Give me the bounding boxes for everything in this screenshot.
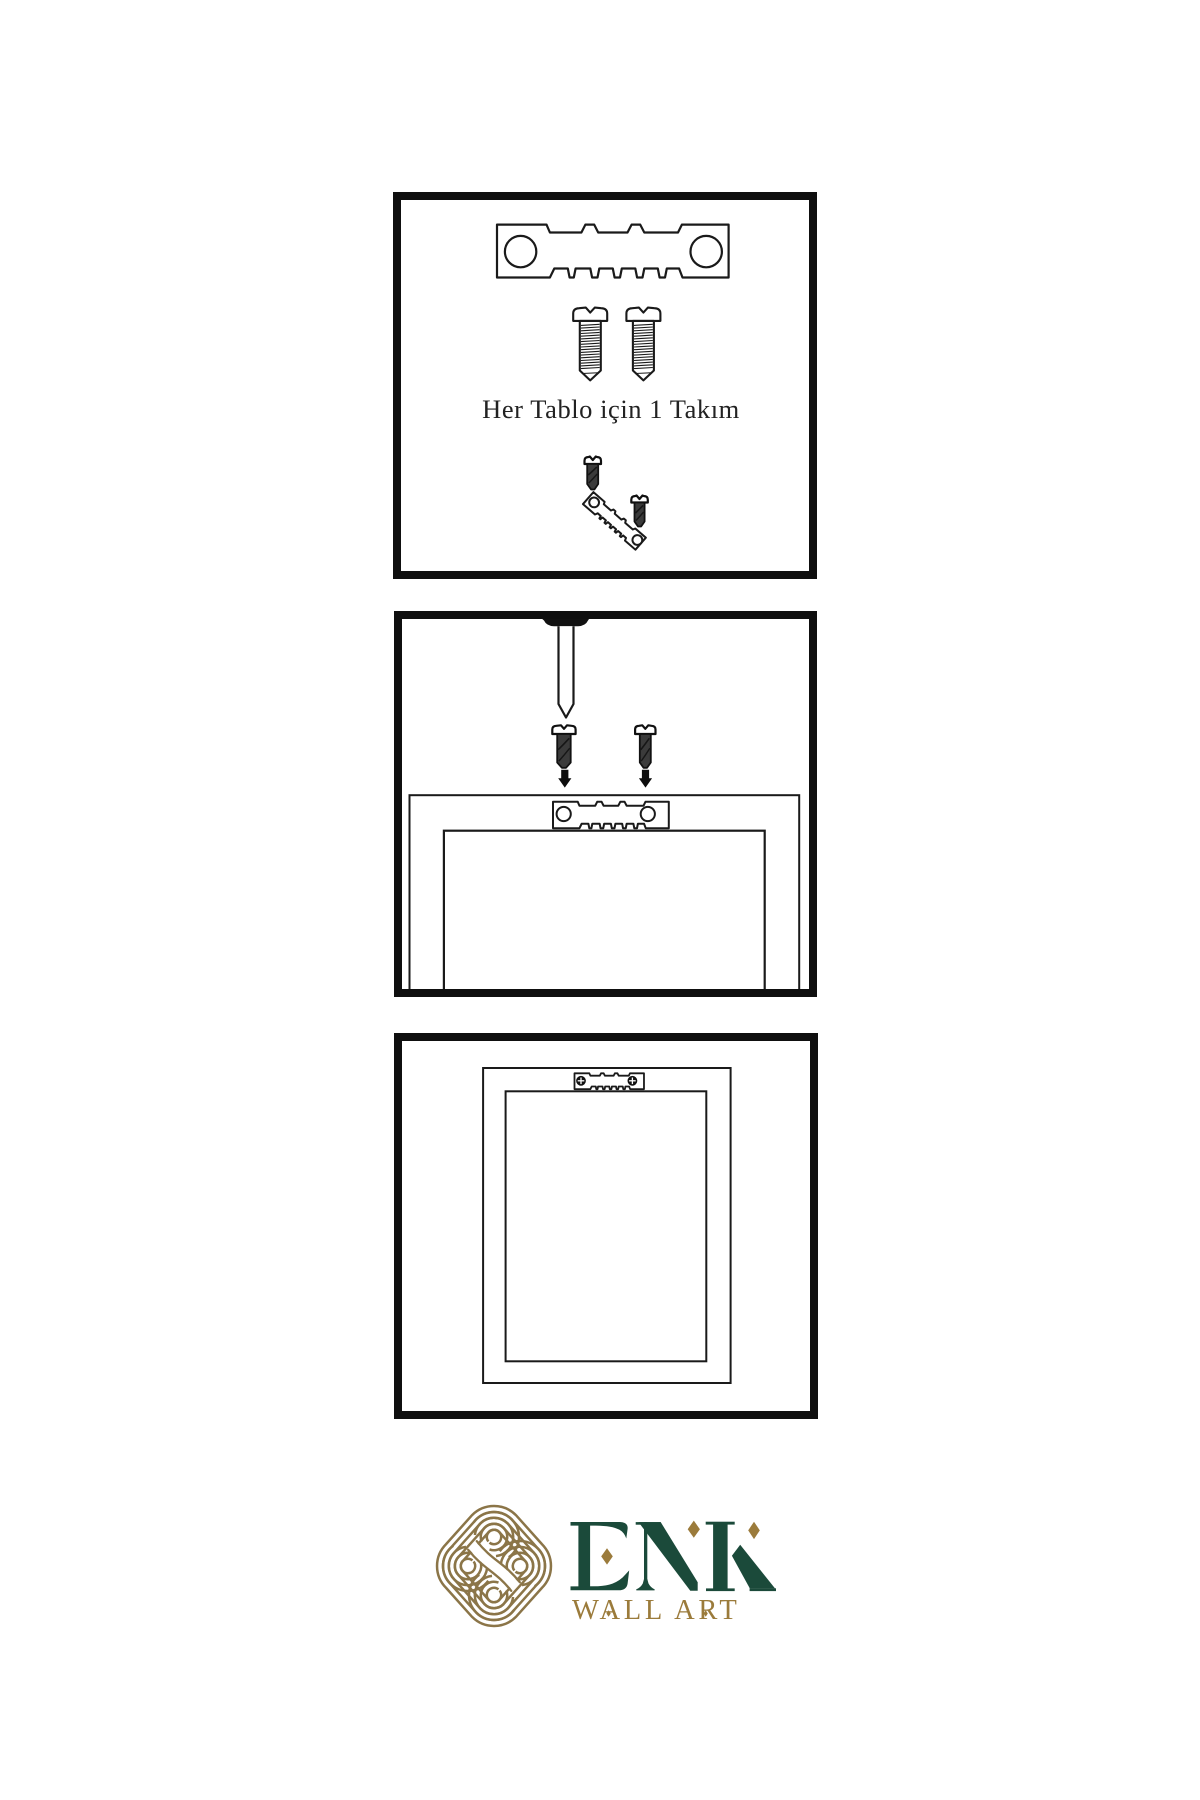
svg-text:WALL ART: WALL ART — [572, 1595, 741, 1626]
svg-text:Her Tablo için 1 Takım: Her Tablo için 1 Takım — [482, 394, 740, 424]
